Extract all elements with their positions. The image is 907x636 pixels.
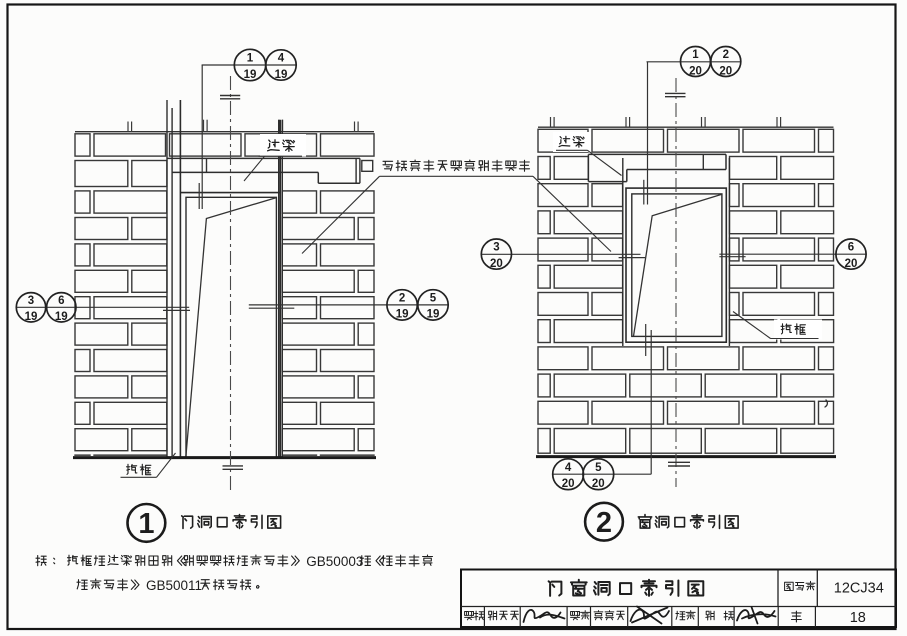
svg-text:19: 19 [427, 309, 440, 321]
svg-text:20: 20 [490, 258, 503, 270]
svg-text:19: 19 [55, 311, 68, 323]
svg-text:19: 19 [396, 309, 409, 321]
svg-text:4: 4 [278, 53, 285, 65]
svg-text:2: 2 [399, 293, 405, 305]
svg-text:20: 20 [719, 65, 732, 77]
svg-text:2: 2 [723, 49, 729, 61]
svg-text:19: 19 [275, 69, 288, 81]
svg-text:20: 20 [592, 478, 605, 490]
svg-text:2: 2 [596, 507, 612, 539]
svg-text:20: 20 [562, 478, 575, 490]
svg-text:1: 1 [247, 53, 254, 65]
svg-text:GB50003: GB50003 [306, 554, 363, 569]
svg-text:6: 6 [848, 242, 854, 254]
svg-text:19: 19 [244, 69, 257, 81]
svg-text:1: 1 [692, 49, 699, 61]
svg-text:6: 6 [58, 295, 64, 307]
svg-text:4: 4 [565, 462, 572, 474]
svg-text:5: 5 [430, 293, 437, 305]
svg-text:GB50011: GB50011 [146, 578, 202, 593]
svg-text:20: 20 [689, 65, 702, 77]
svg-text:3: 3 [28, 295, 34, 307]
svg-text:20: 20 [845, 258, 858, 270]
svg-text:5: 5 [595, 462, 602, 474]
svg-text:1: 1 [138, 508, 154, 540]
svg-text:18: 18 [850, 610, 866, 626]
svg-text:3: 3 [493, 242, 499, 254]
svg-text:19: 19 [25, 311, 38, 323]
svg-text:12CJ34: 12CJ34 [834, 581, 884, 597]
